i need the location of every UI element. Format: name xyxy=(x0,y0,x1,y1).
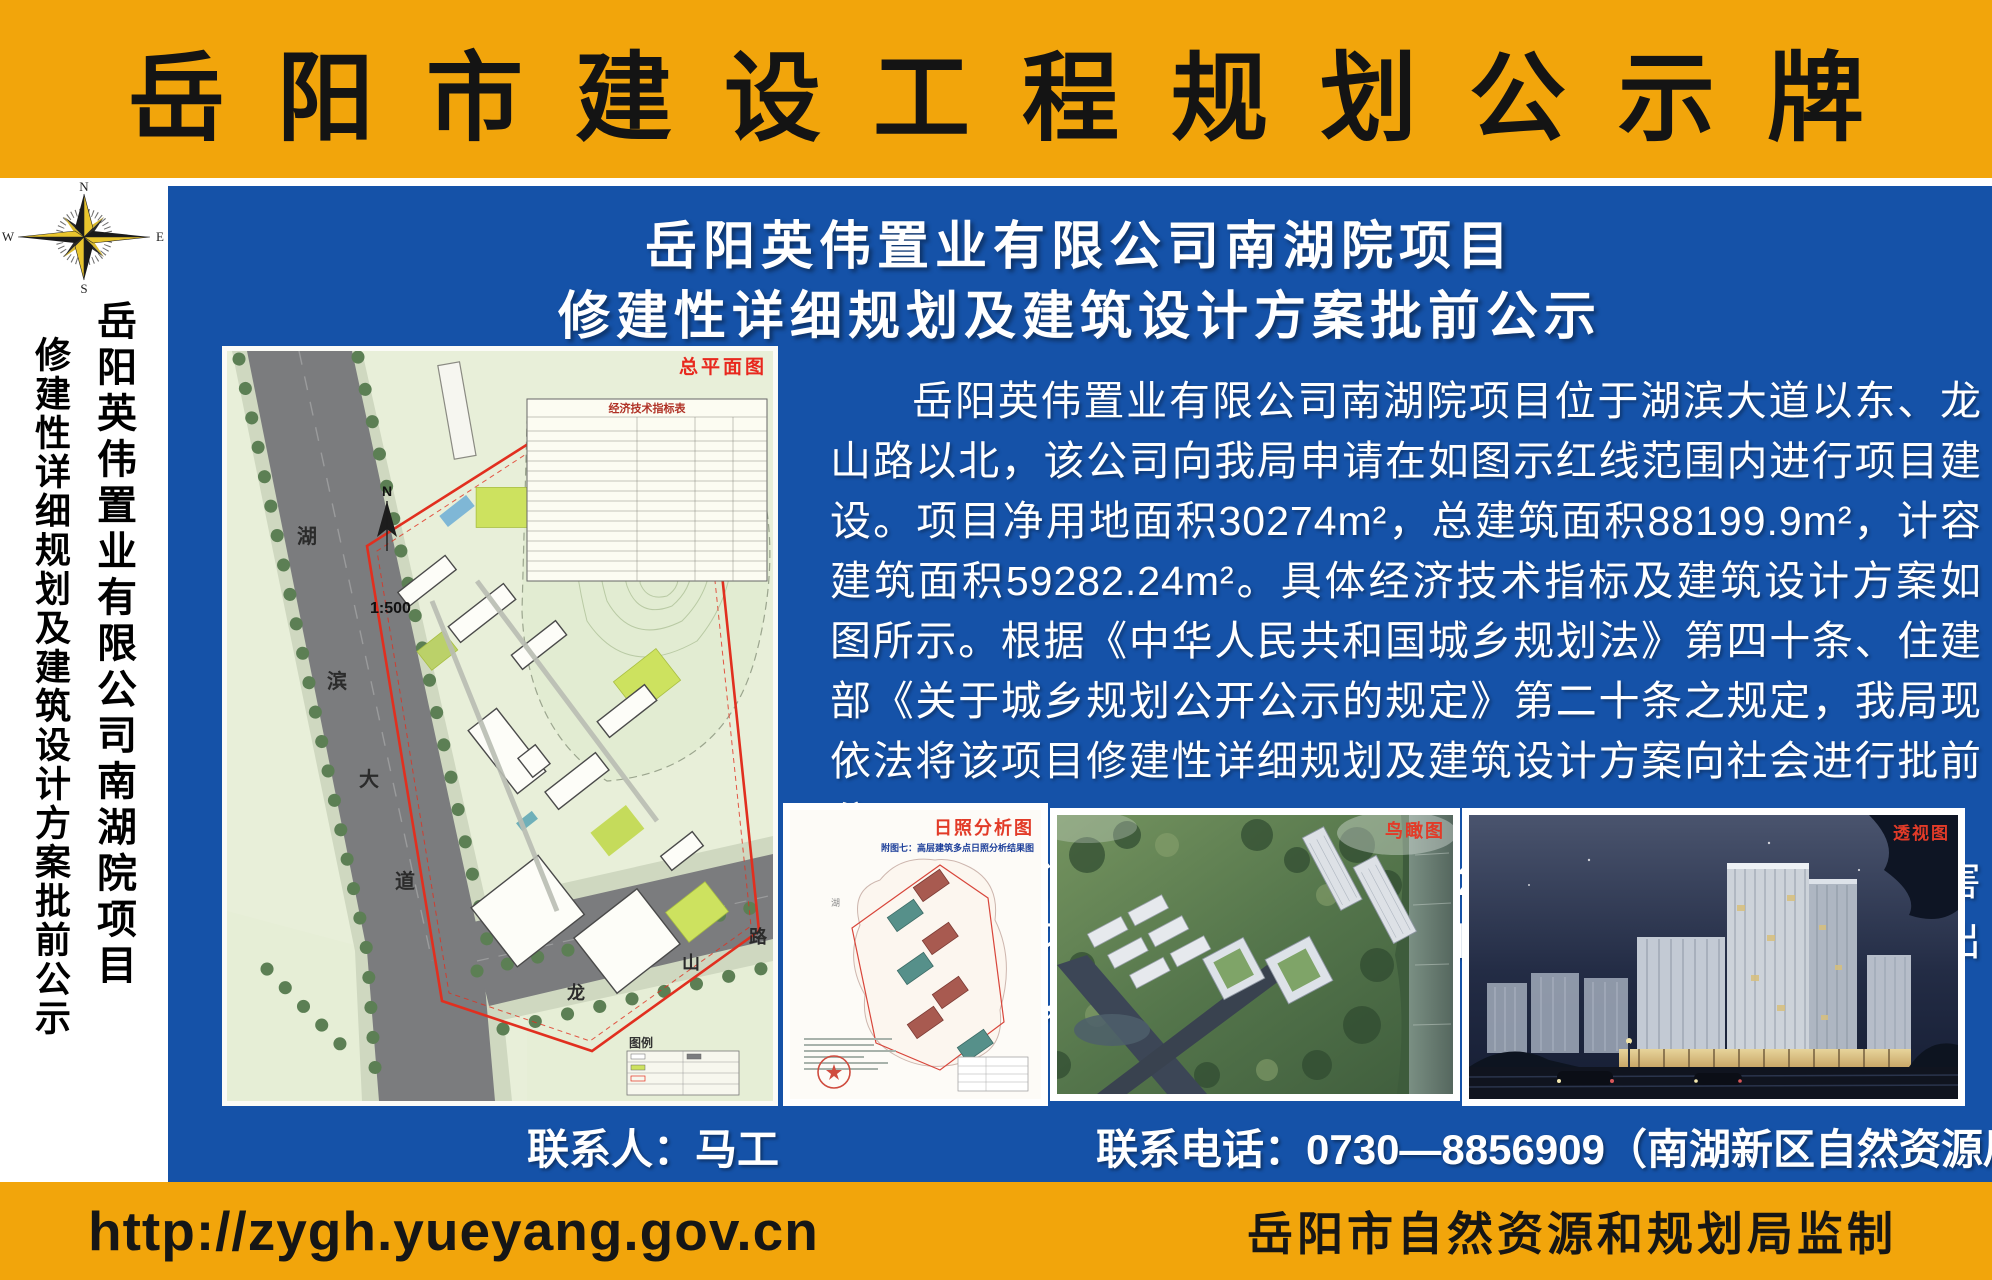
site-plan-label: 总平面图 xyxy=(679,355,767,378)
sidebar-notice-name: 修建性详细规划及建筑设计方案批前公示 xyxy=(24,336,76,1038)
road-hubin-char: 道 xyxy=(395,869,415,893)
sunshine-road-label: 湖 xyxy=(830,898,840,908)
site-plan-image: 经济技术指标表 N xyxy=(222,346,778,1106)
site-plan-table-title: 经济技术指标表 xyxy=(609,401,687,415)
road-longshan-char: 山 xyxy=(682,953,700,973)
board-main-title: 岳阳市建设工程规划公示牌 xyxy=(76,19,1916,160)
compass-s: S xyxy=(80,281,87,295)
project-title-line1: 岳阳英伟置业有限公司南湖院项目 xyxy=(168,204,1992,279)
road-hubin-char: 湖 xyxy=(297,525,317,548)
site-plan-legend-label: 图例 xyxy=(629,1035,653,1050)
contact-row: 联系人：马工 联系电话：0730—8856909（南湖新区自然资源局） xyxy=(168,1116,1992,1176)
top-banner: 岳阳市建设工程规划公示牌 xyxy=(0,0,1992,178)
road-hubin-char: 大 xyxy=(359,768,379,791)
project-title-line2: 修建性详细规划及建筑设计方案批前公示 xyxy=(168,274,1992,349)
site-plan-north-letter: N xyxy=(382,483,392,499)
notice-board: 岳阳市建设工程规划公示牌 N S W E 岳阳英伟置业有限公司南湖院项目 修建性… xyxy=(0,0,1992,1280)
contact-phone: 联系电话：0730—8856909（南湖新区自然资源局） xyxy=(1096,1116,1992,1177)
sunshine-caption: 附图七：高层建筑多点日照分析结果图 xyxy=(881,842,1034,853)
main-panel: 岳阳英伟置业有限公司南湖院项目 修建性详细规划及建筑设计方案批前公示 xyxy=(168,178,1992,1182)
sidebar-project-name: 岳阳英伟置业有限公司南湖院项目 xyxy=(84,300,142,990)
notice-paragraph-1: 岳阳英伟置业有限公司南湖院项目位于湖滨大道以东、龙山路以北，该公司向我局申请在如… xyxy=(830,371,1982,851)
sunshine-label: 日照分析图 xyxy=(934,817,1034,838)
bottom-banner: http://zygh.yueyang.gov.cn 岳阳市自然资源和规划局监制 xyxy=(0,1182,1992,1280)
road-hubin-char: 滨 xyxy=(327,669,347,693)
site-plan-scale: 1:500 xyxy=(370,600,411,617)
compass-n: N xyxy=(79,180,89,194)
compass-e: E xyxy=(156,229,164,244)
perspective-view-image: 透视图 xyxy=(1462,808,1965,1106)
aerial-label: 鸟瞰图 xyxy=(1385,820,1445,841)
website-url: http://zygh.yueyang.gov.cn xyxy=(88,1199,819,1263)
compass-w: W xyxy=(2,229,15,244)
aerial-view-image: 鸟瞰图 xyxy=(1050,808,1460,1101)
issuing-authority: 岳阳市自然资源和规划局监制 xyxy=(1247,1198,1897,1264)
road-longshan-char: 龙 xyxy=(567,982,585,1003)
road-longshan-char: 路 xyxy=(749,926,768,947)
site-plan-drawing: 经济技术指标表 N xyxy=(227,351,773,1101)
contact-person: 联系人：马工 xyxy=(527,1116,779,1177)
perspective-label: 透视图 xyxy=(1893,823,1950,843)
left-sidebar: N S W E 岳阳英伟置业有限公司南湖院项目 修建性详细规划及建筑设计方案批前… xyxy=(0,178,168,1182)
compass-icon: N S W E xyxy=(0,180,168,295)
sunshine-analysis-image: 湖 日照分析图 附图七：高层建筑多点日照分析结果图 xyxy=(783,803,1048,1106)
